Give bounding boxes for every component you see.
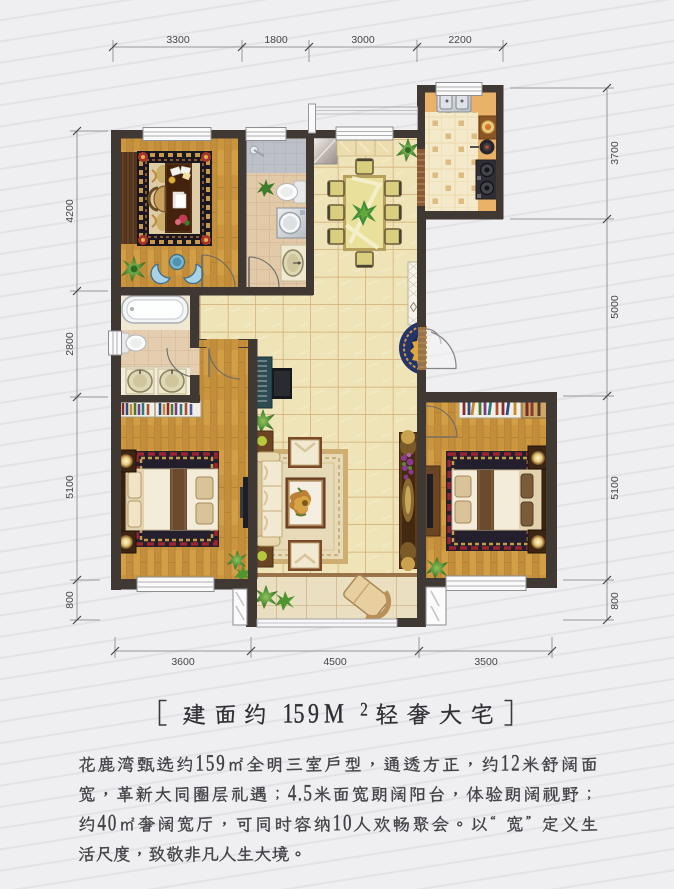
svg-text:800: 800 bbox=[609, 592, 621, 610]
svg-text:1800: 1800 bbox=[264, 34, 288, 46]
svg-text:5000: 5000 bbox=[609, 295, 621, 319]
svg-text:4500: 4500 bbox=[323, 656, 347, 668]
svg-text:5100: 5100 bbox=[64, 475, 76, 499]
svg-text:3000: 3000 bbox=[351, 34, 375, 46]
svg-text:2800: 2800 bbox=[64, 332, 76, 356]
svg-text:3300: 3300 bbox=[166, 34, 190, 46]
svg-text:3500: 3500 bbox=[474, 656, 498, 668]
svg-text:4200: 4200 bbox=[64, 199, 76, 223]
svg-text:800: 800 bbox=[64, 591, 76, 609]
svg-text:3700: 3700 bbox=[609, 141, 621, 165]
svg-text:5100: 5100 bbox=[609, 476, 621, 500]
svg-text:2200: 2200 bbox=[448, 34, 472, 46]
svg-text:3600: 3600 bbox=[171, 656, 195, 668]
